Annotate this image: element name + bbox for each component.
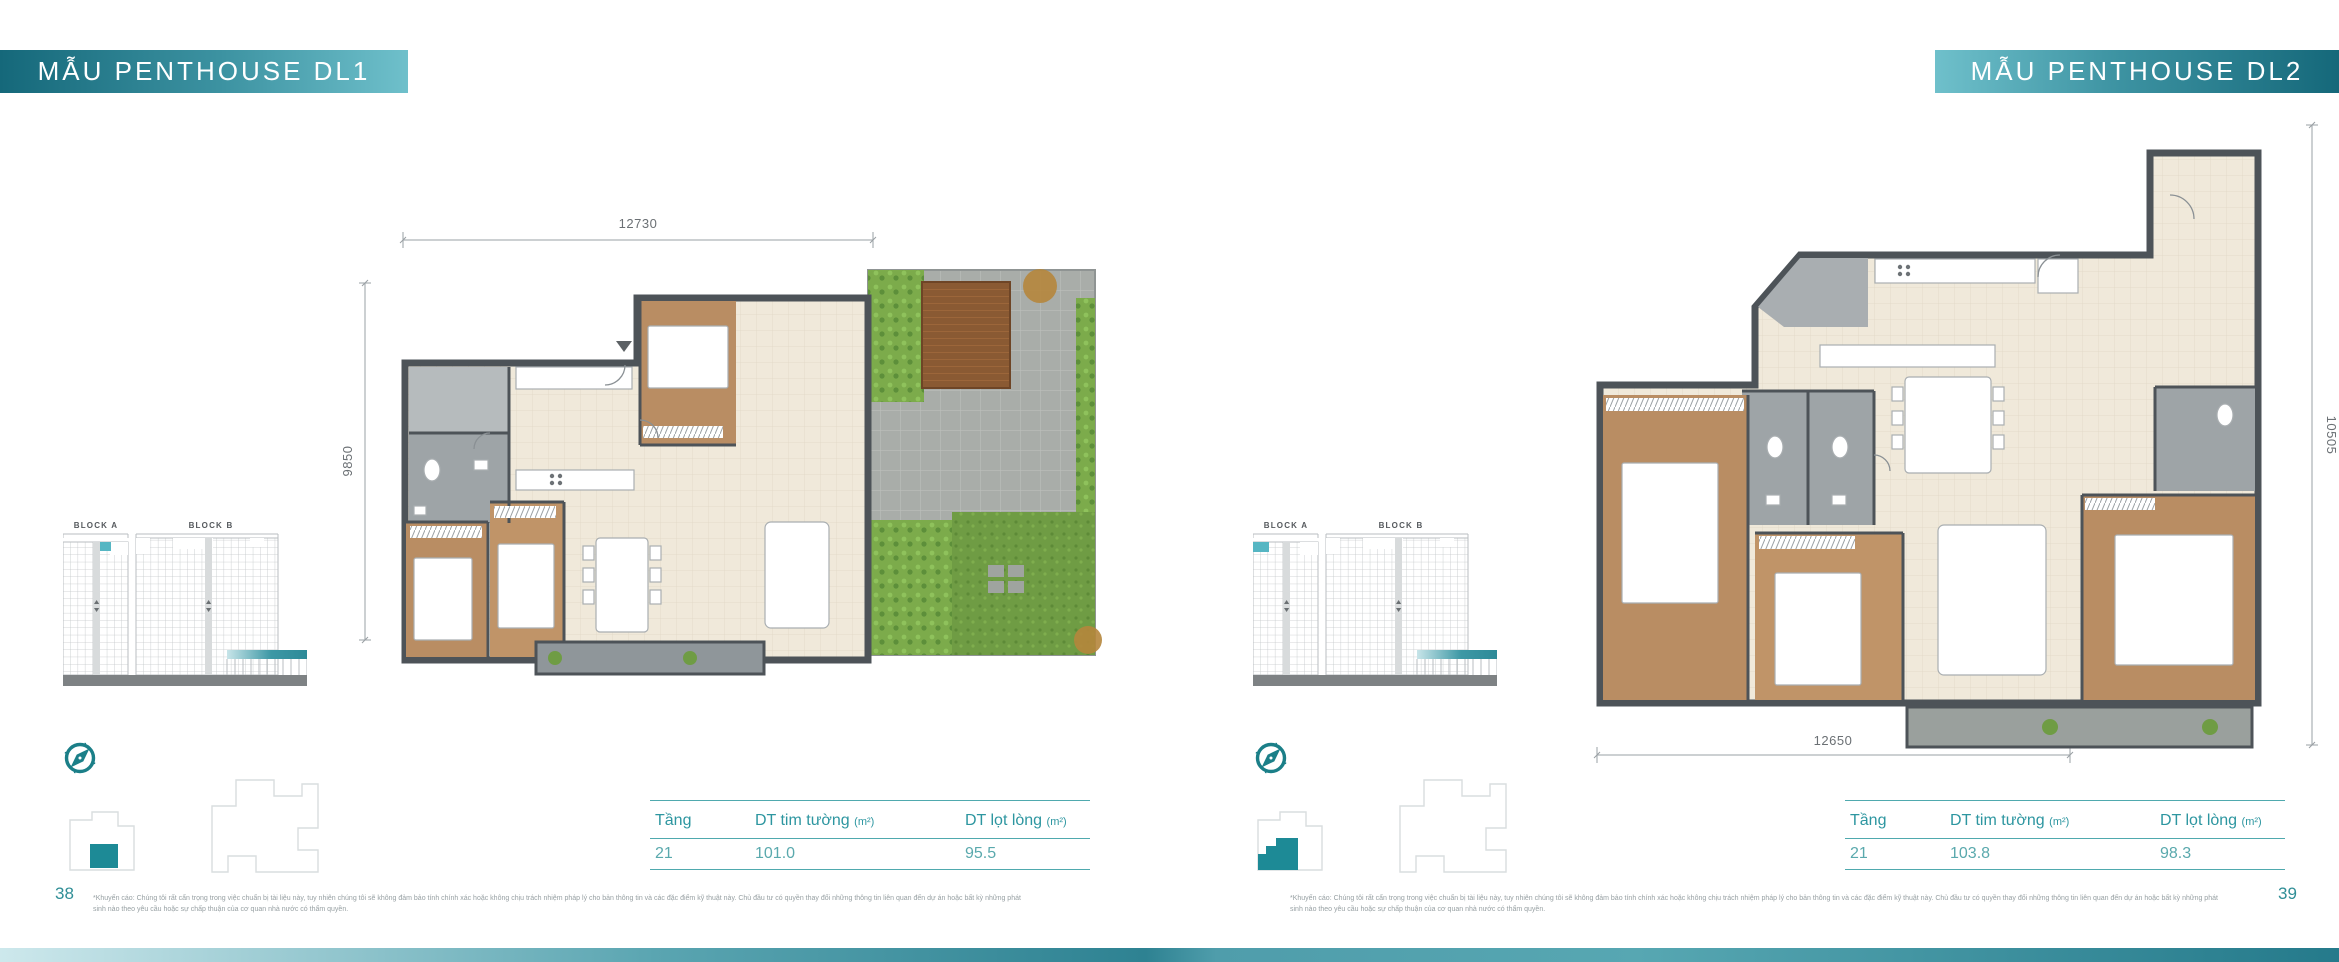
unit-highlight	[90, 844, 118, 868]
sofa	[1938, 525, 2046, 675]
kitchen-counter	[516, 470, 634, 490]
dining-table	[1905, 377, 1991, 473]
plant	[2202, 719, 2218, 735]
bed	[414, 558, 472, 640]
bed	[648, 326, 728, 388]
entry-arrow-icon	[616, 341, 632, 352]
key-plan	[1248, 768, 1528, 880]
toilet	[424, 459, 440, 481]
floor-plan-dl1: 12730 9850	[340, 170, 1110, 710]
page-title: MẪU PENTHOUSE DL2	[1935, 50, 2339, 93]
wardrobe	[494, 506, 556, 518]
toilet	[2217, 404, 2233, 426]
shrub	[1074, 626, 1102, 654]
dim-bottom-label: 12650	[1814, 733, 1853, 748]
sink	[474, 460, 488, 470]
wardrobe	[410, 526, 482, 538]
hedge	[868, 520, 954, 655]
col-floor-header: Tầng	[1850, 812, 1886, 830]
sink	[1766, 495, 1780, 505]
plant	[2042, 719, 2058, 735]
block-location-diagram: BLOCK A BLOCK B	[63, 518, 307, 688]
block-location-diagram: BLOCK A BLOCK B	[1253, 518, 1497, 688]
fridge	[2038, 259, 2078, 293]
floor-value: 21	[655, 845, 673, 863]
utility-room	[409, 367, 509, 433]
sofa	[765, 522, 829, 628]
block-b-label: BLOCK B	[1379, 521, 1424, 530]
floor-value: 21	[1850, 845, 1868, 863]
block-a-label: BLOCK A	[74, 521, 119, 530]
ground-bar	[1253, 675, 1497, 686]
kitchen-counter	[1875, 259, 2035, 283]
gross-area-value: 103.8	[1950, 845, 1990, 863]
wardrobe	[1606, 398, 1744, 411]
sink	[414, 506, 426, 515]
page-number: 39	[2278, 884, 2297, 904]
net-area-value: 95.5	[965, 845, 996, 863]
bed	[2115, 535, 2233, 665]
table-rule	[650, 869, 1090, 870]
bed	[498, 544, 554, 628]
terrace	[868, 269, 1102, 655]
col-gross-header: DT tim tường (m²)	[1950, 812, 2069, 830]
toilet	[1767, 436, 1783, 458]
highlight-unit-cell	[1253, 542, 1269, 552]
col-floor-header: Tầng	[655, 812, 691, 830]
brochure-spread: MẪU PENTHOUSE DL1	[0, 0, 2339, 962]
balcony	[1907, 707, 2252, 747]
page-number: 38	[55, 884, 74, 904]
dim-side-label: 10505	[2324, 416, 2339, 455]
wardrobe	[2085, 498, 2155, 510]
floor-plan-dl2: 10505 12650	[1570, 95, 2339, 775]
col-gross-header: DT tim tường (m²)	[755, 812, 874, 830]
bathroom	[2155, 387, 2255, 491]
shrub	[1023, 269, 1057, 303]
page-dl1: MẪU PENTHOUSE DL1	[0, 0, 1169, 962]
kitchen-counter	[516, 367, 632, 389]
unit-highlight	[1258, 838, 1298, 870]
utility-room	[1758, 258, 1868, 327]
podium-band	[1417, 650, 1497, 659]
hedge	[868, 270, 924, 402]
bottom-gradient-bar	[0, 948, 2339, 962]
table-rule	[1845, 869, 2285, 870]
table-rule	[1845, 800, 2285, 801]
block-b-label: BLOCK B	[189, 521, 234, 530]
area-table: Tầng DT tim tường (m²) DT lọt lòng (m²) …	[1845, 800, 2285, 872]
dim-side-label: 9850	[340, 446, 355, 477]
wood-deck	[922, 282, 1010, 388]
bed	[1622, 463, 1718, 603]
table-rule	[650, 800, 1090, 801]
col-net-header: DT lọt lòng (m²)	[2160, 812, 2262, 830]
dim-top-label: 12730	[619, 216, 658, 231]
podium-band	[227, 650, 307, 659]
table-rule	[650, 838, 1090, 839]
kitchen-island	[1820, 345, 1995, 367]
bed	[1775, 573, 1861, 685]
wardrobe	[1759, 536, 1855, 549]
page-dl2: MẪU PENTHOUSE DL2 10505 12650	[1170, 0, 2339, 962]
area-table: Tầng DT tim tường (m²) DT lọt lòng (m²) …	[650, 800, 1090, 872]
page-title: MẪU PENTHOUSE DL1	[0, 50, 408, 93]
gross-area-value: 101.0	[755, 845, 795, 863]
key-plan	[60, 768, 340, 880]
plant	[548, 651, 562, 665]
dining-table	[596, 538, 648, 632]
block-a-label: BLOCK A	[1264, 521, 1309, 530]
ground-bar	[63, 675, 307, 686]
plant	[683, 651, 697, 665]
disclaimer: *Khuyến cáo: Chúng tôi rất cẩn trọng tro…	[1290, 893, 2218, 915]
net-area-value: 98.3	[2160, 845, 2191, 863]
disclaimer: *Khuyến cáo: Chúng tôi rất cẩn trọng tro…	[93, 893, 1021, 915]
sink	[1832, 495, 1846, 505]
col-net-header: DT lọt lòng (m²)	[965, 812, 1067, 830]
highlight-unit-cell	[100, 542, 111, 551]
toilet	[1832, 436, 1848, 458]
table-rule	[1845, 838, 2285, 839]
balcony	[536, 642, 764, 674]
